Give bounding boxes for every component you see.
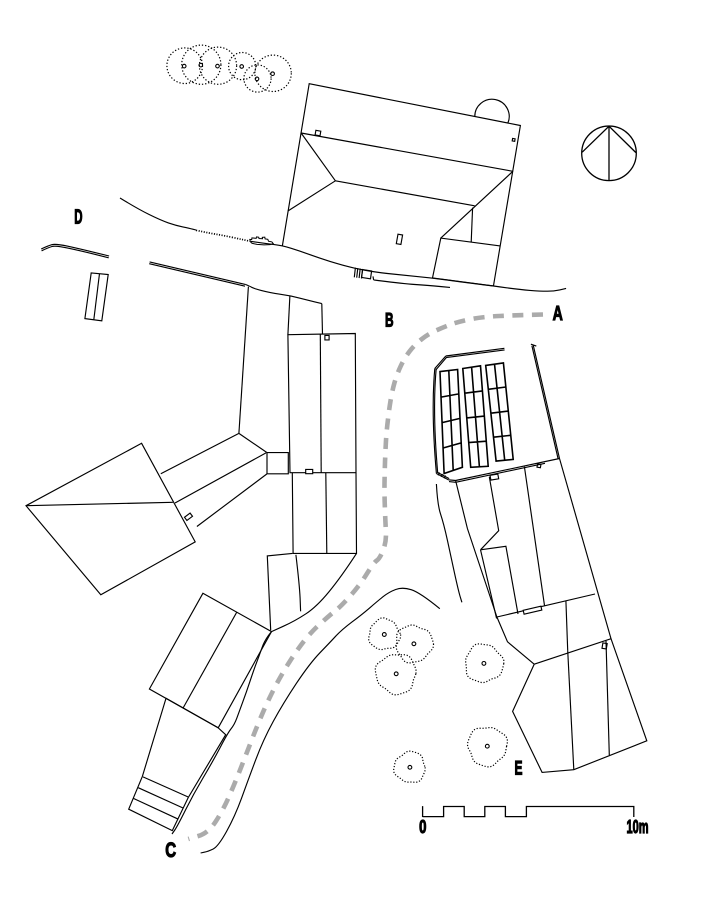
svg-text:B: B xyxy=(385,310,394,331)
svg-text:C: C xyxy=(165,839,176,862)
svg-text:A: A xyxy=(553,303,563,325)
svg-text:0: 0 xyxy=(419,817,426,837)
svg-text:E: E xyxy=(515,758,523,779)
svg-text:D: D xyxy=(74,207,82,229)
svg-text:10m: 10m xyxy=(627,817,649,837)
